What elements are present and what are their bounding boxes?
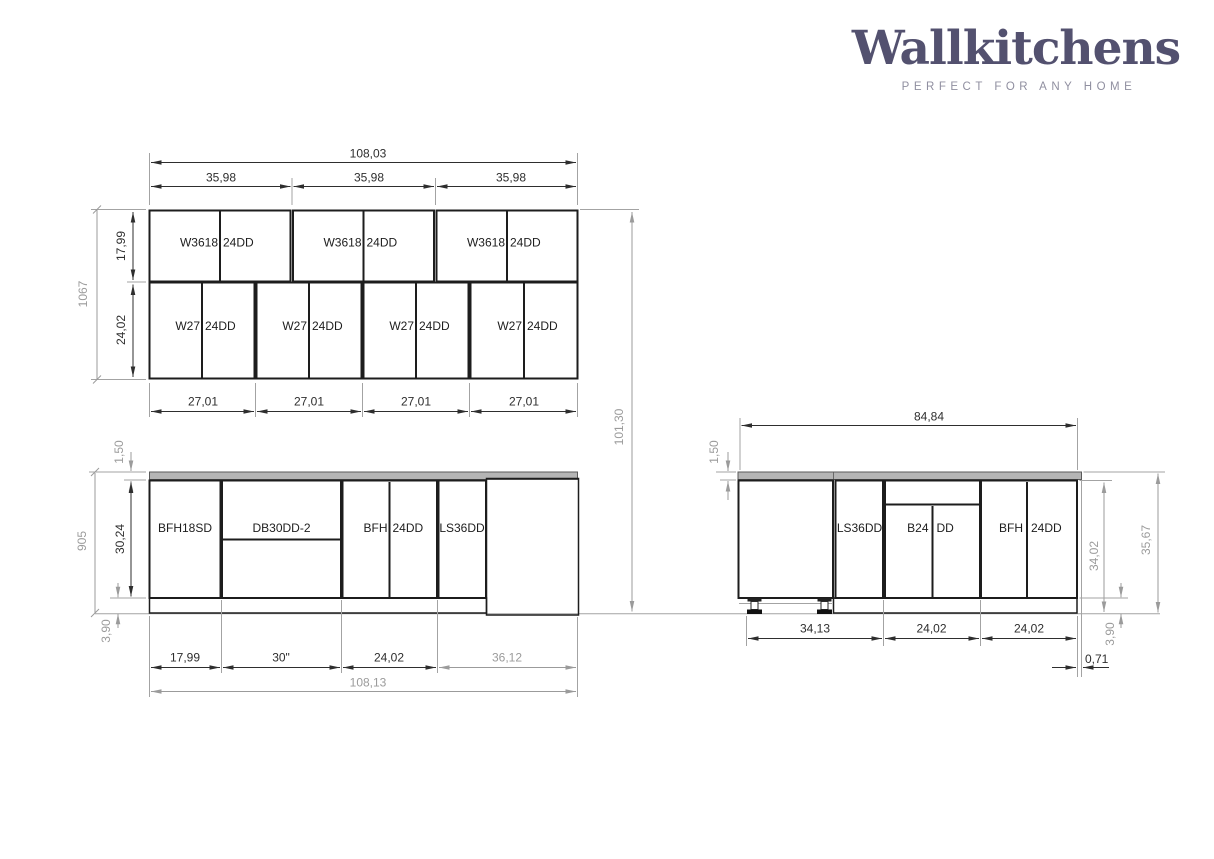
dim-cabinet-width: 34,13 — [800, 622, 830, 636]
brand-tagline: PERFECT FOR ANY HOME — [902, 81, 1137, 93]
dim-countertop-thickness: 1,50 — [112, 440, 126, 464]
base-cabinets-front-elevation: BFH18SD DB30DD-2 BFH 24DD LS36DD 905 1,5… — [75, 440, 579, 697]
cabinet-label: W27 — [497, 319, 522, 333]
cabinet-label: BFH — [999, 521, 1023, 535]
dim-cabinet-width: 27,01 — [188, 395, 218, 409]
dim-cabinet-width: 24,02 — [916, 622, 946, 636]
dim-countertop-overhang: 0,71 — [1085, 652, 1109, 666]
cabinet-label: 24DD — [367, 236, 398, 250]
cabinet-label: 24DD — [527, 319, 558, 333]
dim-toekick-height: 3,90 — [1103, 622, 1117, 646]
cabinet-label: DB30DD-2 — [252, 521, 310, 535]
dim-bottom-row-height: 24,02 — [114, 315, 128, 345]
dim-top-row-height: 17,99 — [114, 231, 128, 261]
wall-cabinets-elevation: W3618 24DD W3618 24DD W3618 24DD W27 24D… — [76, 147, 639, 612]
dim-total-height: 35,67 — [1139, 525, 1153, 555]
cabinet-box — [836, 481, 884, 599]
brand-logo: Wallkitchens PERFECT FOR ANY HOME — [851, 21, 1180, 93]
cabinet-label: W3618 — [180, 236, 218, 250]
dim-section-width: 35,98 — [354, 171, 384, 185]
dim-cabinet-width: 27,01 — [401, 395, 431, 409]
dim-total-width: 108,13 — [350, 676, 387, 690]
leveling-foot — [817, 599, 832, 615]
dim-total-height-mm: 905 — [75, 531, 89, 551]
cabinet-label: B24 — [907, 521, 929, 535]
cabinet-label: 24DD — [510, 236, 541, 250]
cabinet-label: BFH — [364, 521, 388, 535]
dim-box-height: 34,02 — [1087, 541, 1101, 571]
dim-section-width: 35,98 — [496, 171, 526, 185]
dim-section-width: 35,98 — [206, 171, 236, 185]
dim-cabinet-width: 30" — [272, 651, 290, 665]
technical-drawing-canvas: Wallkitchens PERFECT FOR ANY HOME W3618 … — [0, 0, 1214, 859]
dim-cabinet-width: 24,02 — [1014, 622, 1044, 636]
dim-cabinet-width: 24,02 — [374, 651, 404, 665]
cabinet-label: W3618 — [323, 236, 361, 250]
cabinet-box — [439, 481, 487, 599]
dim-total-width: 108,03 — [350, 147, 387, 161]
end-panel — [487, 479, 579, 616]
dim-cabinet-width: 27,01 — [294, 395, 324, 409]
cabinet-label: LS36DD — [837, 521, 883, 535]
toe-kick — [834, 598, 1078, 613]
base-cabinets-return-elevation: LS36DD B24 DD BFH 24DD 84,84 1,50 34,02 … — [707, 410, 1165, 678]
kitchen-drawing-page: Wallkitchens PERFECT FOR ANY HOME W3618 … — [0, 0, 1214, 859]
cabinet-label: 24DD — [223, 236, 254, 250]
cabinet-label: W27 — [389, 319, 414, 333]
cabinet-box — [150, 481, 221, 599]
cabinet-box — [981, 481, 1077, 599]
cabinet-label: DD — [937, 521, 955, 535]
cabinet-label: BFH18SD — [158, 521, 212, 535]
countertop — [738, 472, 1082, 480]
brand-name: Wallkitchens — [851, 21, 1180, 76]
cabinet-label: 24DD — [393, 521, 424, 535]
cabinet-label: 24DD — [419, 319, 450, 333]
dim-total-height-mm: 1067 — [76, 280, 90, 307]
side-panel — [739, 481, 834, 599]
leveling-foot — [747, 599, 762, 615]
cabinet-label: W27 — [175, 319, 200, 333]
dim-floor-to-top: 101,30 — [612, 408, 626, 445]
dim-toekick-height: 3,90 — [99, 619, 113, 643]
dim-cabinet-width: 27,01 — [509, 395, 539, 409]
cabinet-label: 24DD — [205, 319, 236, 333]
dim-total-width: 84,84 — [914, 410, 944, 424]
dim-cabinet-width: 17,99 — [170, 651, 200, 665]
cabinet-label: W27 — [282, 319, 307, 333]
cabinet-label: 24DD — [1031, 521, 1062, 535]
dim-countertop-thickness: 1,50 — [707, 440, 721, 464]
cabinet-label: 24DD — [312, 319, 343, 333]
dim-open-width: 36,12 — [492, 651, 522, 665]
toe-kick — [150, 598, 487, 613]
dim-box-height: 30,24 — [113, 524, 127, 554]
cabinet-label: LS36DD — [439, 521, 485, 535]
cabinet-label: W3618 — [467, 236, 505, 250]
